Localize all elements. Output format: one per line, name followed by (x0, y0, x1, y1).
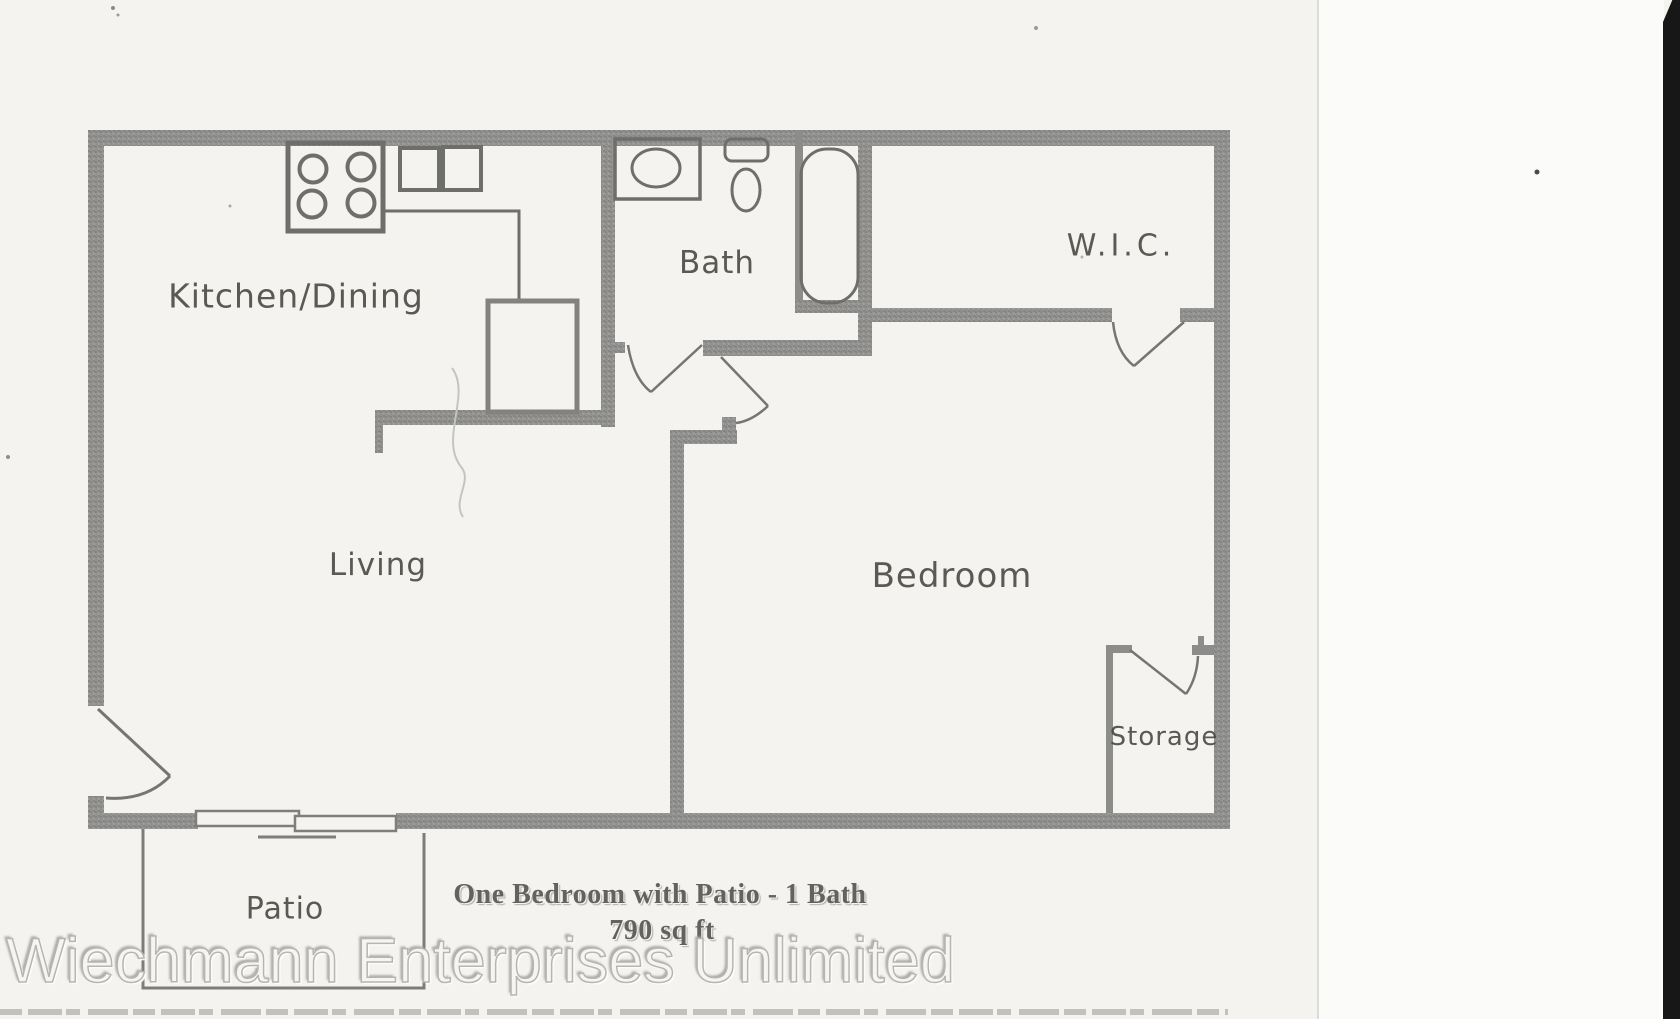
scanned-floorplan-page: Kitchen/Dining Bath W.I.C. Living Bedroo… (0, 0, 1680, 1019)
bath-door (628, 345, 702, 392)
bedroom-door (721, 357, 768, 423)
scan-artifacts (0, 6, 1540, 1012)
storage-door (1130, 650, 1198, 694)
sliding-patio-door (196, 811, 396, 837)
watermark-text: Wiechmann Enterprises Unlimited (6, 925, 955, 997)
room-label-storage: Storage (1110, 722, 1219, 752)
wic-door (1113, 322, 1184, 366)
bathtub-icon (801, 149, 858, 303)
exterior-walls (88, 130, 1230, 829)
room-label-patio: Patio (246, 892, 325, 927)
room-label-kitchen-dining: Kitchen/Dining (168, 277, 424, 316)
stove-icon (288, 143, 383, 231)
room-label-bedroom: Bedroom (872, 556, 1033, 596)
toilet-icon (725, 139, 768, 211)
kitchen-sink-icon (400, 147, 481, 190)
plan-title: One Bedroom with Patio - 1 Bath (453, 879, 866, 911)
room-label-bath: Bath (679, 245, 755, 281)
room-label-wic: W.I.C. (1067, 229, 1176, 264)
bath-sink-icon (615, 139, 700, 199)
floorplan-drawing (0, 0, 1680, 1019)
entry-door (98, 709, 170, 798)
pantry-closet (488, 301, 577, 412)
room-label-living: Living (329, 547, 427, 583)
